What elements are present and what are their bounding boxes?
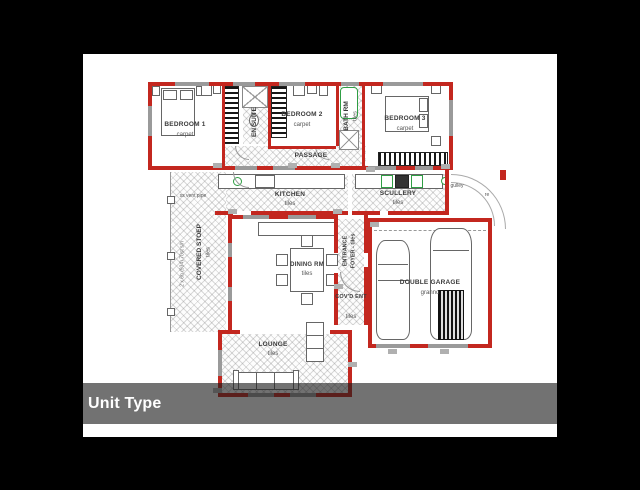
dimension-tag	[440, 349, 449, 354]
built-in-cupboard	[378, 152, 448, 166]
room-label-ensuite: EN SUITE	[252, 107, 259, 137]
pillow	[180, 90, 193, 100]
appliance	[411, 175, 423, 188]
chair	[326, 254, 338, 266]
room-label-dining: DINING RM	[290, 262, 324, 268]
annotation-re: re	[485, 193, 489, 198]
window	[415, 166, 433, 170]
wall	[445, 170, 449, 211]
annotation-gulley: gulley	[450, 184, 463, 189]
dimension-tag	[334, 284, 343, 289]
room-label-scullery: SCULLERY	[380, 191, 416, 198]
floorplan-image[interactable]: BEDROOM 1 carpet EN SUITE BEDROOM 2 carp…	[83, 54, 557, 437]
room-label-covered-stoep: COVERED STOEP	[197, 224, 204, 280]
dimension-tag	[370, 222, 379, 227]
window	[449, 100, 453, 136]
floor-label-bedroom3: carpet	[397, 126, 414, 132]
dimension-tag	[331, 163, 340, 168]
window	[243, 215, 269, 219]
room-label-entrance-foyer-2: FOYER - tiles	[351, 234, 357, 269]
floor-label-garage: granno	[421, 290, 440, 296]
pillow	[419, 98, 428, 112]
wall	[222, 86, 225, 166]
wall	[268, 86, 271, 146]
dimension-tag	[366, 167, 375, 172]
window	[233, 82, 255, 86]
window	[175, 82, 209, 86]
caption-bar: Unit Type	[83, 383, 557, 424]
floor-label-lounge: tiles	[268, 351, 279, 357]
wall	[500, 170, 506, 180]
floor-label-dining: tiles	[302, 271, 313, 277]
kitchen-island	[258, 222, 336, 236]
room-label-passage: PASSAGE	[295, 153, 328, 160]
window	[288, 215, 316, 219]
dimension-tag	[213, 163, 222, 168]
wall	[330, 330, 352, 334]
car	[376, 240, 410, 340]
chair	[276, 274, 288, 286]
wall	[228, 257, 232, 287]
window	[148, 106, 152, 136]
wall	[148, 166, 453, 170]
stove	[255, 175, 275, 188]
wall	[228, 301, 232, 330]
room-label-bedroom3: BEDROOM 3	[384, 116, 425, 123]
floor-label-bedroom1: carpet	[177, 132, 194, 138]
room-label-bedroom1: BEDROOM 1	[164, 122, 205, 129]
floor-label-covd-ent: tiles	[346, 314, 357, 320]
wall	[218, 330, 240, 334]
wall	[362, 86, 365, 166]
wall	[336, 86, 339, 146]
wall	[488, 218, 492, 348]
floor-label-scullery: tiles	[393, 200, 404, 206]
room-label-covd-ent: COV'D ENT	[335, 295, 367, 301]
floor-label-bedroom2: carpet	[294, 122, 311, 128]
annotation-vent-pipe: ss vent pipe	[180, 194, 207, 199]
garage-setback-line	[374, 230, 486, 231]
wall	[388, 211, 449, 215]
dimension-tag	[288, 163, 297, 168]
shower	[242, 86, 268, 108]
wall	[368, 218, 492, 222]
chair	[301, 235, 313, 247]
garage-door	[376, 344, 410, 348]
room-label-entrance-foyer-1: ENTRANCE	[343, 236, 349, 267]
caption-label: Unit Type	[88, 395, 162, 413]
window	[228, 243, 232, 257]
cabinet-shelf	[307, 348, 323, 349]
floor-label-bathrm: tiles	[353, 111, 359, 121]
car-windshield	[433, 250, 469, 251]
dimension-tag	[441, 164, 450, 169]
pillow	[163, 90, 177, 100]
room-label-lounge: LOUNGE	[258, 342, 287, 349]
chair	[276, 254, 288, 266]
wall	[368, 218, 372, 348]
dimension-tag	[228, 209, 237, 214]
car-windshield	[378, 264, 408, 265]
room-label-garage: DOUBLE GARAGE	[400, 280, 460, 287]
wall	[334, 215, 338, 253]
window	[235, 166, 257, 170]
garage-door	[428, 344, 468, 348]
window	[383, 82, 423, 86]
stoep-column	[167, 308, 175, 316]
window	[228, 287, 232, 301]
dimension-tag	[388, 349, 397, 354]
chair	[301, 293, 313, 305]
window	[279, 82, 305, 86]
annotation-stoep-dimension: 2 x 6b (934) 70st s/h	[181, 241, 186, 287]
floor-label-covered-stoep: tiles	[206, 247, 212, 257]
appliance	[395, 175, 409, 188]
window	[218, 350, 222, 376]
side-table	[431, 136, 441, 146]
dining-table	[290, 248, 324, 292]
room-label-kitchen: KITCHEN	[275, 192, 305, 199]
appliance	[381, 175, 393, 188]
window	[341, 82, 359, 86]
floorplan-drawing: BEDROOM 1 carpet EN SUITE BEDROOM 2 carp…	[83, 54, 557, 437]
dimension-tag	[333, 209, 342, 214]
wall	[228, 215, 232, 243]
stoep-column	[167, 252, 175, 260]
floor-label-kitchen: tiles	[285, 201, 296, 207]
room-label-bedroom2: BEDROOM 2	[281, 112, 322, 119]
cabinet-shelf	[307, 335, 323, 336]
wall	[268, 146, 336, 149]
room-label-bathrm: BATH RM	[344, 101, 351, 131]
stoep-column	[167, 196, 175, 204]
shower	[339, 130, 359, 150]
car-cover-hatch	[438, 290, 464, 340]
tv-cabinet	[306, 322, 324, 362]
side-table	[152, 86, 160, 96]
dimension-tag	[348, 362, 357, 367]
